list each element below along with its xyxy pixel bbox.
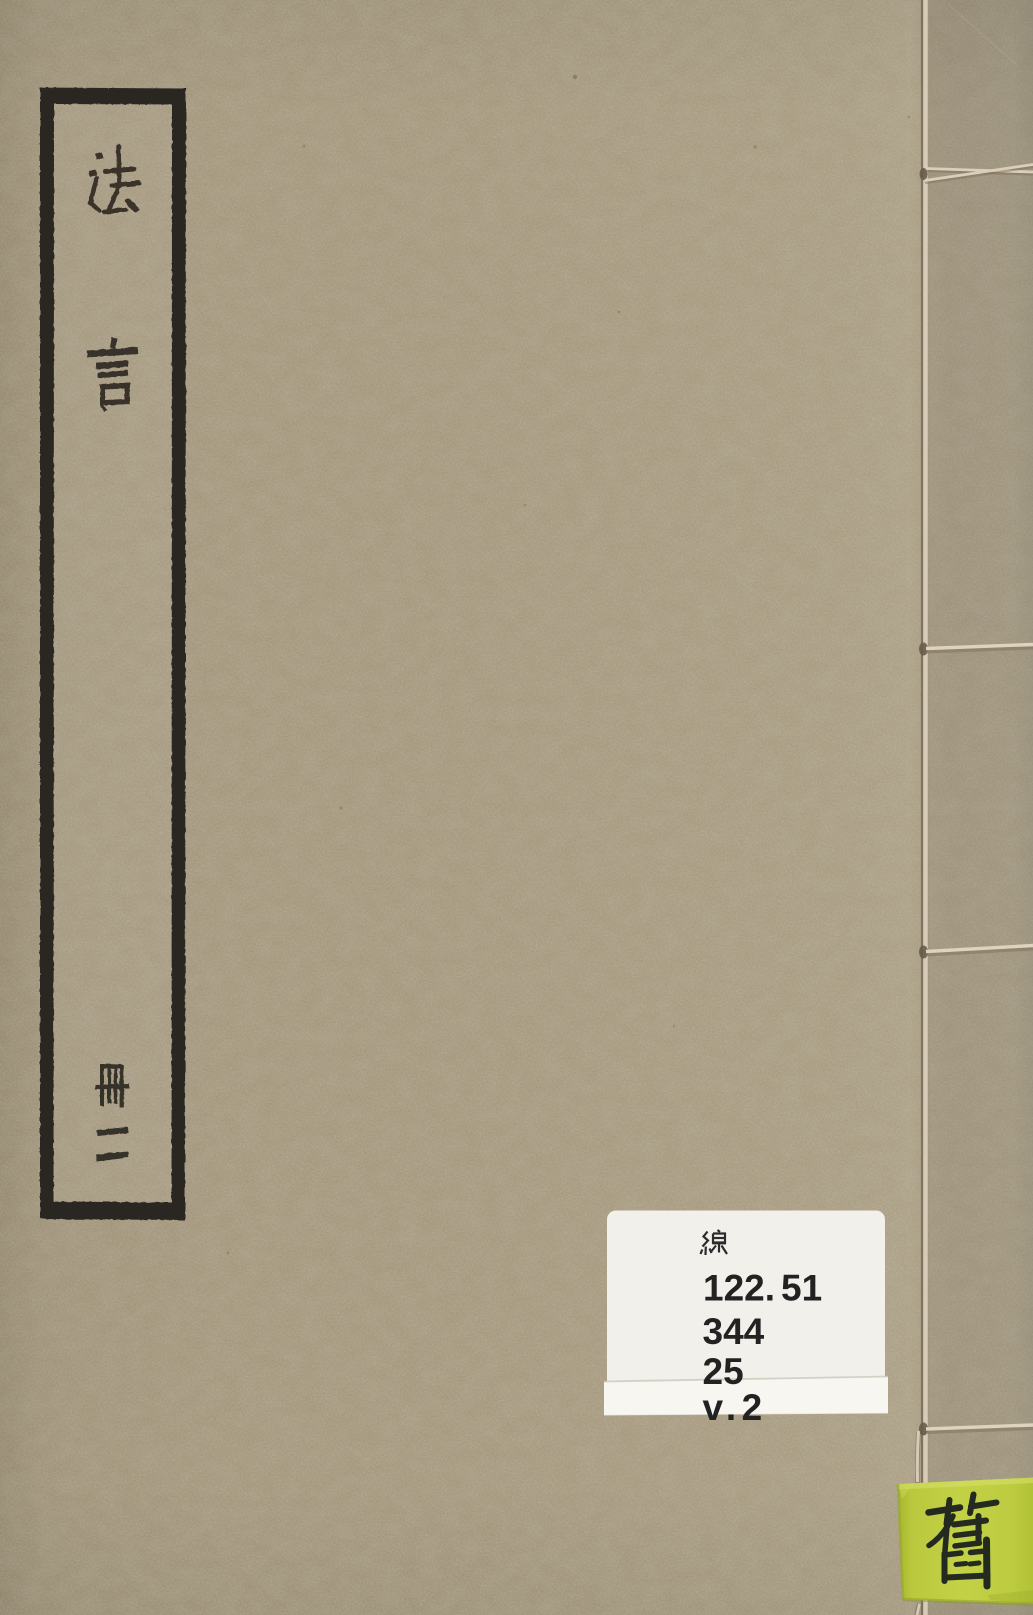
svg-text:344: 344 xyxy=(703,1311,765,1352)
svg-text:25: 25 xyxy=(703,1351,744,1392)
svg-text:v.2: v.2 xyxy=(703,1387,768,1428)
svg-text:122.51: 122.51 xyxy=(703,1268,822,1309)
